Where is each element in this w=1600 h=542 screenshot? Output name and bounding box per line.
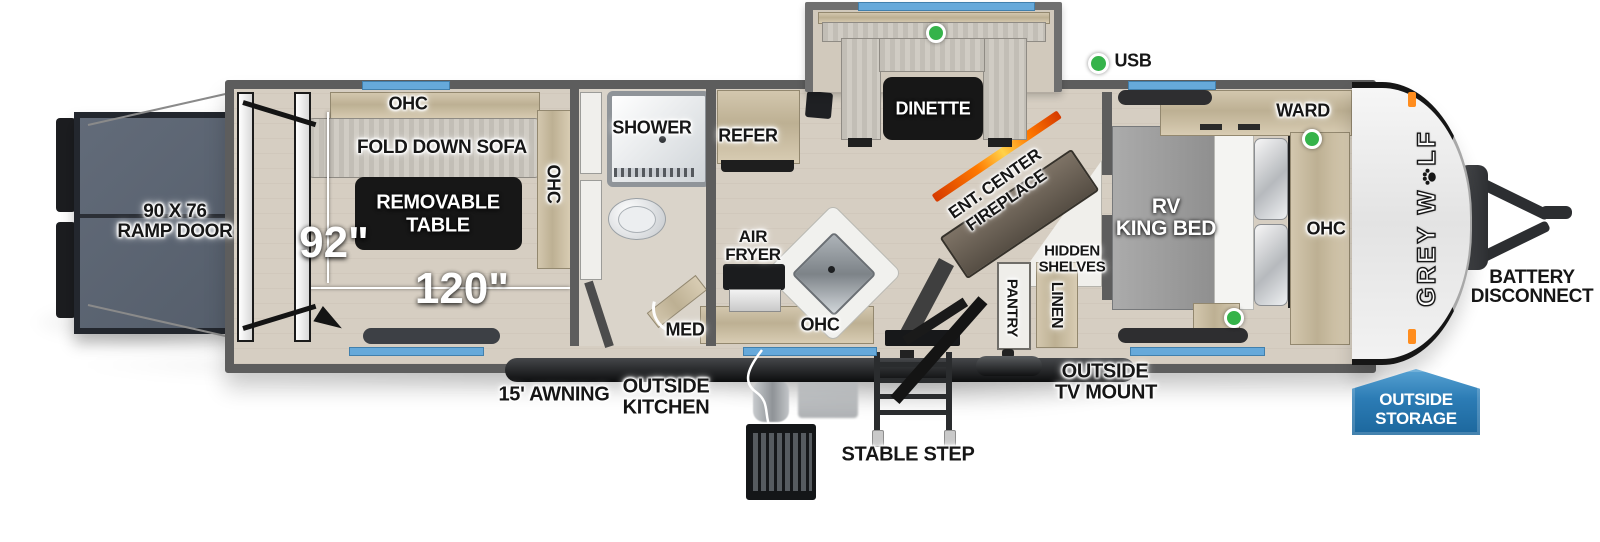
portable-grill xyxy=(746,424,816,500)
wall-garage-bath xyxy=(570,89,579,346)
bath-partition-top xyxy=(580,92,602,174)
window-garage-top xyxy=(362,81,450,90)
garage-ohc-side-label: OHC xyxy=(543,164,564,203)
air-fryer-body xyxy=(729,289,781,312)
usb-dot-bed xyxy=(1224,308,1244,328)
bath-partition-mid xyxy=(580,180,602,280)
hidden-shelves-label-line2: SHELVES xyxy=(1039,259,1106,276)
bed-bolster-top xyxy=(1118,90,1212,105)
wall-bath-kitchen xyxy=(706,89,716,346)
removable-table-label-line2: TABLE xyxy=(406,215,470,238)
dinette-bench-right xyxy=(983,38,1027,140)
wardrobe-slot-1 xyxy=(1200,124,1222,130)
bed-pillow-bottom xyxy=(1254,224,1288,306)
awning-label: 15' AWNING xyxy=(498,384,609,407)
usb-dot-wardrobe xyxy=(1302,129,1322,149)
air-fryer-label-line2: FRYER xyxy=(725,245,781,265)
kitchen-faucet xyxy=(828,266,835,273)
rv-king-bed-label-line1: RV xyxy=(1152,195,1180,219)
marker-light-top xyxy=(1408,92,1416,107)
wardrobe-slot-2 xyxy=(1238,124,1260,130)
tv-mount-bar xyxy=(976,356,1042,376)
rv-king-bed-label-line2: KING BED xyxy=(1116,217,1216,241)
usb-legend-label: USB xyxy=(1114,51,1151,72)
bed-runner xyxy=(1214,126,1254,310)
ramp-door-label-line2: RAMP DOOR xyxy=(117,221,232,243)
ramp-rail-bottom xyxy=(56,222,76,318)
removable-table-label-line1: REMOVABLE xyxy=(376,192,500,215)
tv-mount-label-line2: TV MOUNT xyxy=(1055,382,1157,405)
tv-mount-label-line1: OUTSIDE xyxy=(1062,361,1149,384)
outside-storage-label-line1: OUTSIDE xyxy=(1379,390,1452,410)
outside-storage-label-line2: STORAGE xyxy=(1375,409,1457,429)
window-bedroom-top xyxy=(1128,81,1216,90)
kitchen-ohc-label: OHC xyxy=(800,315,839,336)
fold-down-sofa-label: FOLD DOWN SOFA xyxy=(357,137,527,159)
kitchen-end-seat xyxy=(805,91,833,119)
bed-bolster-bottom xyxy=(1118,328,1248,343)
power-cord xyxy=(730,348,800,433)
marker-light-bottom xyxy=(1408,329,1416,344)
bed-pillow-top xyxy=(1254,138,1288,220)
dinette-foot-right xyxy=(988,138,1012,147)
wall-bedroom-top xyxy=(1102,92,1112,175)
air-fryer-cooktop xyxy=(723,264,785,290)
brand-logo-part2: LF xyxy=(1413,129,1442,166)
stable-step-label: STABLE STEP xyxy=(841,444,974,467)
ward-label: WARD xyxy=(1276,101,1330,122)
dim-92-label: 92" xyxy=(299,218,369,268)
shower-label: SHOWER xyxy=(612,118,691,139)
garage-ohc-cabinet xyxy=(330,92,540,120)
rear-doorframe-post-left xyxy=(237,92,254,342)
window-bedroom-bottom xyxy=(1130,347,1265,356)
dinette-bench-left xyxy=(841,38,881,140)
battery-disconnect-label-line2: DISCONNECT xyxy=(1471,286,1594,308)
window-garage-bottom xyxy=(349,347,484,356)
dinette-label: DINETTE xyxy=(896,99,971,120)
rv-floorplan: GREY WLF 90 X 76 RAMP DOOR OHC FOLD DOWN… xyxy=(0,0,1600,542)
dim-120-label: 120" xyxy=(415,264,509,314)
wall-bedroom-bottom xyxy=(1102,215,1112,300)
paw-icon xyxy=(1417,167,1437,187)
stable-step-rung-1 xyxy=(880,362,946,367)
outside-kitchen-label-line2: KITCHEN xyxy=(623,397,710,420)
brand-logo-part1: GREY W xyxy=(1413,188,1442,307)
window-slide-top xyxy=(858,2,1035,11)
garage-bottom-cushion xyxy=(363,328,500,344)
hidden-shelves-label-line1: HIDDEN xyxy=(1044,243,1100,260)
hitch-arm-bottom xyxy=(1480,220,1551,262)
air-fryer-label-line1: AIR xyxy=(739,227,767,247)
rear-doorframe-post-right xyxy=(294,92,311,342)
hitch-coupler xyxy=(1540,206,1572,219)
outside-kitchen-label-line1: OUTSIDE xyxy=(623,376,710,399)
toilet-seat xyxy=(618,206,656,233)
refer-label: REFER xyxy=(718,126,778,147)
pantry-label: PANTRY xyxy=(1004,279,1021,337)
outside-griddle xyxy=(798,380,858,418)
brand-logo: GREY WLF xyxy=(1412,128,1442,308)
stable-step-rail-right xyxy=(946,352,952,434)
refrigerator-base xyxy=(721,160,794,172)
stable-step-rung-4 xyxy=(880,410,946,415)
shower-door-track xyxy=(614,168,694,177)
dinette-bench-back xyxy=(879,38,985,72)
garage-ohc-top-label: OHC xyxy=(388,94,427,115)
dinette-foot-left xyxy=(848,138,872,147)
med-label: MED xyxy=(665,320,704,341)
usb-dot-dinette xyxy=(926,23,946,43)
linen-label: LINEN xyxy=(1047,282,1065,329)
bedroom-ohc-label: OHC xyxy=(1306,219,1345,240)
ramp-rail-top xyxy=(56,118,76,212)
usb-dot-legend xyxy=(1088,53,1109,74)
ramp-door-label-line1: 90 X 76 xyxy=(143,201,206,223)
